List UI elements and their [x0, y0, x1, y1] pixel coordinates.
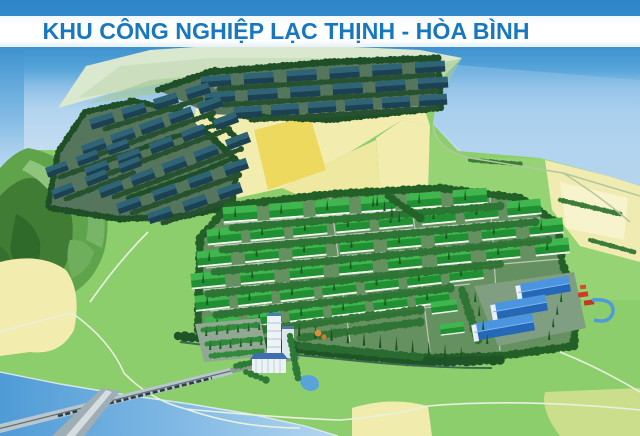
svg-text:KHU CÔNG NGHIỆP LẠC THỊNH - HÒ: KHU CÔNG NGHIỆP LẠC THỊNH - HÒA BÌNH: [43, 17, 530, 44]
